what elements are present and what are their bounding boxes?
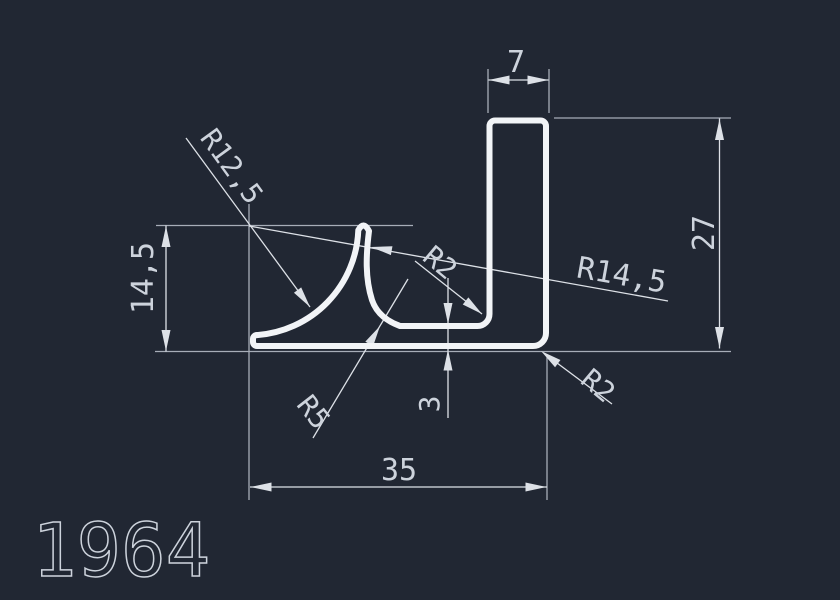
part-number: 1964: [32, 508, 210, 594]
arrowhead: [526, 483, 547, 492]
arrowhead: [365, 324, 384, 347]
label-right-height: 27: [687, 215, 722, 251]
cad-canvas: 7 27 14,5 35 3 R12,5 R14,5 R5 R2 R2 1964: [0, 0, 840, 600]
arrowhead: [715, 119, 724, 140]
arrowhead: [463, 297, 485, 317]
arrowhead: [162, 226, 171, 247]
label-radius-fin-right: R14,5: [574, 251, 669, 301]
arrowhead: [251, 483, 272, 492]
label-bottom-width: 35: [381, 453, 417, 488]
arrowhead: [528, 76, 549, 85]
label-base-thickness: 3: [413, 396, 446, 413]
label-radius-fin-left: R12,5: [194, 123, 270, 211]
arrowhead: [162, 330, 171, 351]
arrowhead: [444, 303, 453, 324]
label-left-height: 14,5: [126, 242, 161, 314]
label-radius-floor-fillet: R5: [290, 389, 337, 436]
dimension-labels: 7 27 14,5 35 3 R12,5 R14,5 R5 R2 R2: [126, 45, 722, 488]
label-radius-inner-fillet: R2: [417, 239, 464, 286]
label-radius-outer-corner: R2: [575, 362, 622, 409]
label-top-width: 7: [507, 45, 525, 80]
technical-drawing: 7 27 14,5 35 3 R12,5 R14,5 R5 R2 R2 1964: [0, 0, 840, 600]
profile-outline: [253, 121, 546, 347]
arrowhead: [715, 327, 724, 348]
arrowhead: [294, 287, 314, 309]
arrowhead: [538, 347, 560, 367]
arrowhead: [444, 350, 453, 371]
